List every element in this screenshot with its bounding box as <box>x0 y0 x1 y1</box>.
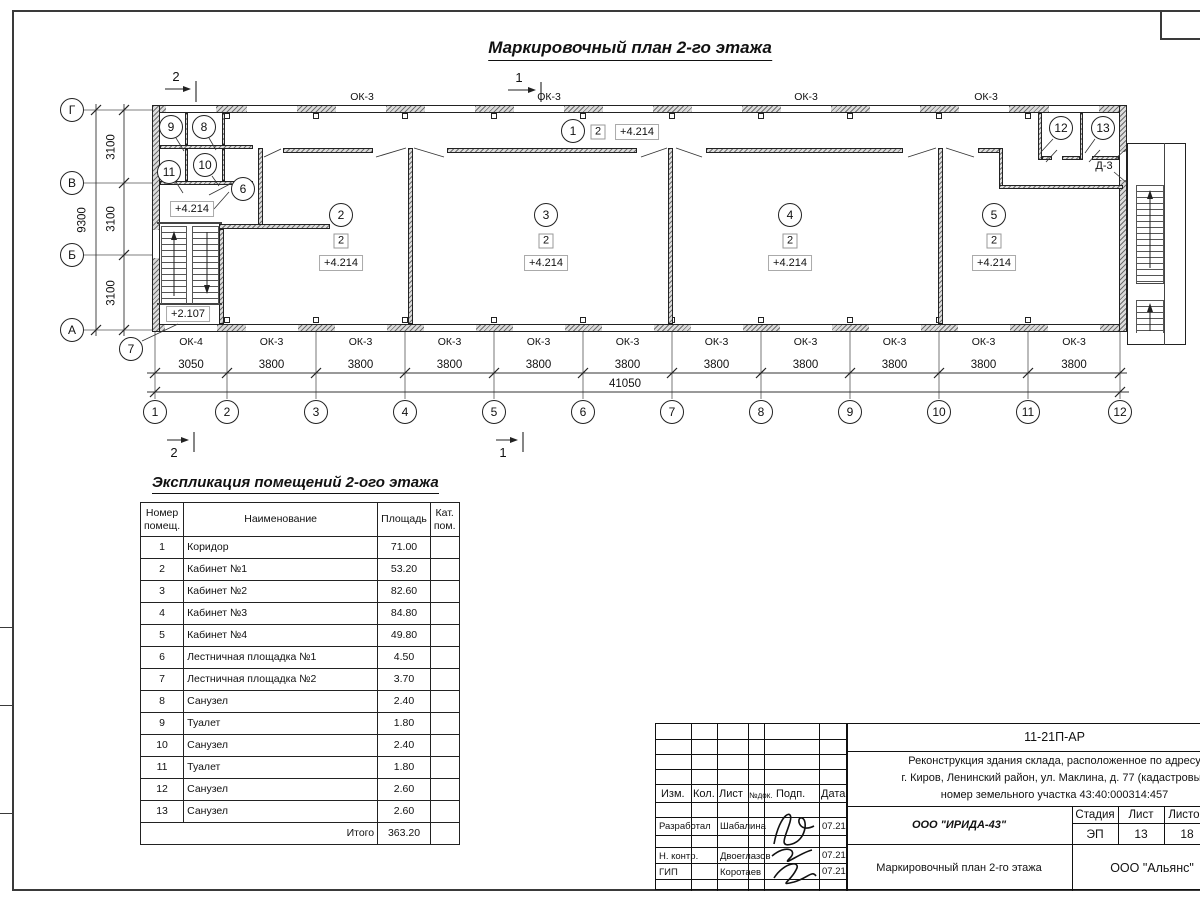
table-row: 7Лестничная площадка №23.70 <box>141 669 460 691</box>
pier-bottom <box>580 317 586 323</box>
dim-label: 3100 <box>106 134 118 160</box>
room-circle: 9 <box>159 115 183 139</box>
pier-bottom <box>224 317 230 323</box>
window-bottom <box>602 324 654 332</box>
axis-circle: 4 <box>393 400 417 424</box>
window-bottom <box>513 324 565 332</box>
dim-label: 3100 <box>106 206 118 232</box>
table-cell <box>430 669 459 691</box>
table-cell: 53.20 <box>378 559 431 581</box>
table-cell: Санузел <box>184 691 378 713</box>
pier-top <box>580 113 586 119</box>
table-cell: Туалет <box>184 713 378 735</box>
outer-wall-right <box>1119 105 1127 332</box>
room-circle: 5 <box>982 203 1006 227</box>
axis-circle: 11 <box>1016 400 1040 424</box>
elevation-mark: +4.214 <box>319 255 363 271</box>
window-label: ОК-3 <box>794 92 818 103</box>
wc-partition <box>1038 113 1042 160</box>
table-row: 12Санузел2.60 <box>141 779 460 801</box>
titleblock: Изм. Кол. Лист №док. Подп. Дата Разработ… <box>655 723 1200 890</box>
table-cell: Кабинет №2 <box>184 581 378 603</box>
partition-wall <box>668 148 673 324</box>
category-box: 2 <box>987 234 1002 249</box>
table-cell: 2.60 <box>378 779 431 801</box>
table-cell: 13 <box>141 801 184 823</box>
table-cell <box>430 647 459 669</box>
table-cell <box>430 823 459 845</box>
table-cell: Кабинет №1 <box>184 559 378 581</box>
dim-label: 3800 <box>348 360 374 372</box>
table-cell: 71.00 <box>378 537 431 559</box>
table-row: 2Кабинет №153.20 <box>141 559 460 581</box>
table-cell <box>430 559 459 581</box>
window-label: ОК-4 <box>179 337 203 348</box>
corridor-wall <box>706 148 903 153</box>
window-label: ОК-3 <box>883 337 907 348</box>
window-left <box>152 230 160 258</box>
window-bottom <box>869 324 921 332</box>
tb-role-developer: Разработал <box>659 821 711 832</box>
axis-circle: 5 <box>482 400 506 424</box>
table-row: 4Кабинет №384.80 <box>141 603 460 625</box>
elevation-mark: +4.214 <box>615 124 659 140</box>
tb-sheet-title: Маркировочный план 2-го этажа <box>846 862 1072 875</box>
room-circle: 13 <box>1091 116 1115 140</box>
table-row: 8Санузел2.40 <box>141 691 460 713</box>
window-bottom <box>246 324 298 332</box>
axis-circle: 9 <box>838 400 862 424</box>
wc-partition <box>222 149 225 181</box>
dim-label: 3800 <box>526 360 552 372</box>
table-cell: 10 <box>141 735 184 757</box>
window-bottom <box>165 324 217 332</box>
table-cell: Коридор <box>184 537 378 559</box>
axis-circle: Г <box>60 98 84 122</box>
dim-label: 3800 <box>615 360 641 372</box>
pier-bottom <box>1025 317 1031 323</box>
category-box: 2 <box>591 125 606 140</box>
tb-listov-value: 18 <box>1164 827 1200 841</box>
window-top <box>692 105 742 113</box>
tb-date-ncontr: 07.21 <box>822 850 846 861</box>
pier-top <box>936 113 942 119</box>
corridor-wall <box>447 148 637 153</box>
table-cell: 82.60 <box>378 581 431 603</box>
schedule-header: Площадь <box>378 503 431 537</box>
tb-col-izm: Изм. <box>661 788 685 801</box>
table-cell <box>430 801 459 823</box>
tb-name-ncontr: Двоеглазов <box>720 851 771 862</box>
window-bottom <box>1048 324 1100 332</box>
table-cell: 1.80 <box>378 713 431 735</box>
dim-label: 3800 <box>704 360 730 372</box>
table-cell: Санузел <box>184 779 378 801</box>
window-bottom <box>424 324 476 332</box>
stair-flight <box>192 226 219 304</box>
axis-circle: В <box>60 171 84 195</box>
pier-bottom <box>313 317 319 323</box>
table-row: 13Санузел2.60 <box>141 801 460 823</box>
category-box: 2 <box>783 234 798 249</box>
table-cell: 9 <box>141 713 184 735</box>
window-bottom <box>780 324 832 332</box>
window-label: ОК-3 <box>350 92 374 103</box>
tb-doc-code: 11-21П-АР <box>846 730 1200 745</box>
axis-circle: 8 <box>749 400 773 424</box>
table-cell: 84.80 <box>378 603 431 625</box>
tb-role-ncontr: Н. контр. <box>659 851 698 862</box>
axis-circle: 7 <box>660 400 684 424</box>
table-cell: 1.80 <box>378 757 431 779</box>
table-cell: 3 <box>141 581 184 603</box>
window-bottom <box>691 324 743 332</box>
category-box: 2 <box>539 234 554 249</box>
tb-company: ООО "Альянс" <box>1072 861 1200 876</box>
room-circle: 11 <box>157 160 181 184</box>
wc-partition <box>1080 113 1083 160</box>
table-cell <box>430 735 459 757</box>
tb-col-list: Лист <box>719 788 743 801</box>
tb-stage-value: ЭП <box>1072 827 1118 841</box>
table-row: 11Туалет1.80 <box>141 757 460 779</box>
table-cell: Лестничная площадка №2 <box>184 669 378 691</box>
pier-top <box>402 113 408 119</box>
table-cell: 6 <box>141 647 184 669</box>
window-label: ОК-3 <box>537 92 561 103</box>
tb-org: ООО "ИРИДА-43" <box>846 819 1072 832</box>
pier-top <box>758 113 764 119</box>
total-label: Итого <box>141 823 378 845</box>
table-cell: Санузел <box>184 801 378 823</box>
room-circle: 12 <box>1049 116 1073 140</box>
window-label: ОК-3 <box>527 337 551 348</box>
tb-name-gip: Коротаев <box>720 867 761 878</box>
table-cell: 2 <box>141 559 184 581</box>
room-circle: 7 <box>119 337 143 361</box>
axis-circle: 3 <box>304 400 328 424</box>
table-cell: 8 <box>141 691 184 713</box>
window-label: ОК-3 <box>1062 337 1086 348</box>
table-cell: 5 <box>141 625 184 647</box>
pier-top <box>1025 113 1031 119</box>
window-label: ОК-3 <box>260 337 284 348</box>
tb-listov-header: Листов <box>1164 809 1200 823</box>
table-cell: 7 <box>141 669 184 691</box>
table-cell: 3.70 <box>378 669 431 691</box>
window-label: ОК-3 <box>794 337 818 348</box>
dim-label: 3800 <box>259 360 285 372</box>
elevation-mark: +4.214 <box>170 201 214 217</box>
tb-list-header: Лист <box>1118 809 1164 823</box>
total-value: 363.20 <box>378 823 431 845</box>
table-cell: 2.40 <box>378 735 431 757</box>
wc-partition <box>222 113 225 145</box>
window-top <box>1049 105 1099 113</box>
table-cell: 2.60 <box>378 801 431 823</box>
room-circle: 3 <box>534 203 558 227</box>
wc-wall <box>160 145 253 149</box>
dim-label: 3800 <box>882 360 908 372</box>
window-label: ОК-3 <box>438 337 462 348</box>
dim-label: 3050 <box>178 360 204 372</box>
axis-circle: А <box>60 318 84 342</box>
elevation-mark: +4.214 <box>524 255 568 271</box>
wc-partition <box>185 149 188 181</box>
axis-circle: 10 <box>927 400 951 424</box>
category-box: 2 <box>334 234 349 249</box>
schedule-header: Кат. пом. <box>430 503 459 537</box>
tb-list-value: 13 <box>1118 827 1164 841</box>
tb-stage-header: Стадия <box>1072 809 1118 823</box>
table-cell: 2.40 <box>378 691 431 713</box>
table-cell: 1 <box>141 537 184 559</box>
pier-bottom <box>758 317 764 323</box>
tb-project-line3: номер земельного участка 43:40:000314:45… <box>846 789 1200 802</box>
window-top <box>514 105 564 113</box>
table-cell: Кабинет №3 <box>184 603 378 625</box>
stair-block-wall <box>219 224 330 229</box>
table-row: 10Санузел2.40 <box>141 735 460 757</box>
section-mark-label: 2 <box>170 446 177 459</box>
pier-top <box>847 113 853 119</box>
schedule-header: Номер помещ. <box>141 503 184 537</box>
pier-top <box>313 113 319 119</box>
dim-label: 3800 <box>437 360 463 372</box>
table-cell: 4.50 <box>378 647 431 669</box>
window-label: ОК-3 <box>349 337 373 348</box>
table-row: 9Туалет1.80 <box>141 713 460 735</box>
axis-circle: 6 <box>571 400 595 424</box>
window-top <box>425 105 475 113</box>
schedule-table: Номер помещ.НаименованиеПлощадьКат. пом.… <box>140 502 460 845</box>
table-cell: 49.80 <box>378 625 431 647</box>
axis-circle: 1 <box>143 400 167 424</box>
dim-label: 3800 <box>1061 360 1087 372</box>
window-label: ОК-3 <box>705 337 729 348</box>
dim-total-label: 9300 <box>77 207 89 233</box>
schedule-header: Наименование <box>184 503 378 537</box>
schedule-title: Экспликация помещений 2-ого этажа <box>152 474 439 494</box>
table-row: 1Коридор71.00 <box>141 537 460 559</box>
elevation-mark: +4.214 <box>768 255 812 271</box>
window-label: ОК-3 <box>616 337 640 348</box>
pier-bottom <box>491 317 497 323</box>
table-cell <box>430 537 459 559</box>
stair-wall <box>219 229 224 324</box>
table-row: 3Кабинет №282.60 <box>141 581 460 603</box>
table-cell: Туалет <box>184 757 378 779</box>
section-mark-label: 1 <box>499 446 506 459</box>
axis-circle: Б <box>60 243 84 267</box>
wc-wall <box>1062 156 1080 160</box>
corridor-wall <box>283 148 373 153</box>
tb-col-ndok: №док. <box>749 791 772 801</box>
window-label: ОК-3 <box>972 337 996 348</box>
window-top <box>870 105 920 113</box>
tb-project-line1: Реконструкция здания склада, расположенн… <box>846 755 1200 768</box>
window-top <box>781 105 831 113</box>
table-cell <box>430 713 459 735</box>
external-stair-flight <box>1136 300 1164 333</box>
room-circle: 2 <box>329 203 353 227</box>
table-cell <box>430 691 459 713</box>
tb-date-gip: 07.21 <box>822 866 846 877</box>
room-circle: 1 <box>561 119 585 143</box>
partition-wall <box>938 148 943 324</box>
table-row: 5Кабинет №449.80 <box>141 625 460 647</box>
tb-role-gip: ГИП <box>659 867 678 878</box>
tb-date-developer: 07.21 <box>822 821 846 832</box>
wc-wall <box>1042 156 1052 160</box>
door-mark-label: Д-3 <box>1095 161 1112 172</box>
stair-block-wall <box>258 148 263 229</box>
partition-wall <box>408 148 413 324</box>
table-cell <box>430 625 459 647</box>
section-mark-label: 1 <box>515 71 522 84</box>
table-cell: Кабинет №4 <box>184 625 378 647</box>
pier-bottom <box>847 317 853 323</box>
room-circle: 8 <box>192 115 216 139</box>
tb-name-developer: Шабалина <box>720 821 766 832</box>
step-wall <box>999 148 1003 189</box>
external-stair-flight <box>1136 185 1164 283</box>
dim-label: 3800 <box>793 360 819 372</box>
dim-label: 3800 <box>971 360 997 372</box>
table-cell <box>430 603 459 625</box>
signature <box>768 842 820 888</box>
window-top <box>166 105 216 113</box>
outer-wall-left <box>152 105 160 332</box>
stair-flight <box>161 226 187 304</box>
tb-col-podp: Подп. <box>776 788 805 801</box>
room-circle: 6 <box>231 177 255 201</box>
section-mark-label: 2 <box>172 70 179 83</box>
dim-total-label: 41050 <box>609 379 641 391</box>
table-cell: Лестничная площадка №1 <box>184 647 378 669</box>
table-cell <box>430 757 459 779</box>
table-cell: 12 <box>141 779 184 801</box>
window-top <box>336 105 386 113</box>
external-stair-line <box>1164 143 1165 345</box>
elevation-mark: +4.214 <box>972 255 1016 271</box>
window-top <box>247 105 297 113</box>
table-cell <box>430 581 459 603</box>
table-cell: Санузел <box>184 735 378 757</box>
pier-top <box>491 113 497 119</box>
external-stair-landing <box>1136 283 1164 284</box>
table-cell: 11 <box>141 757 184 779</box>
wc-partition <box>185 113 188 145</box>
step-wall <box>999 185 1123 189</box>
window-top <box>603 105 653 113</box>
pier-top <box>669 113 675 119</box>
room-circle: 10 <box>193 153 217 177</box>
dim-label: 3100 <box>106 280 118 306</box>
tb-col-kol: Кол. <box>693 788 715 801</box>
tb-project-line2: г. Киров, Ленинский район, ул. Маклина, … <box>846 772 1200 785</box>
stair-edge <box>157 222 222 224</box>
table-row: 6Лестничная площадка №14.50 <box>141 647 460 669</box>
door-opening-d3 <box>1120 152 1126 180</box>
window-label: ОК-3 <box>974 92 998 103</box>
axis-circle: 12 <box>1108 400 1132 424</box>
table-cell <box>430 779 459 801</box>
table-cell: 4 <box>141 603 184 625</box>
window-bottom <box>335 324 387 332</box>
table-total-row: Итого363.20 <box>141 823 460 845</box>
window-top <box>959 105 1009 113</box>
tb-col-data: Дата <box>821 788 845 801</box>
elevation-mark: +2.107 <box>166 306 210 322</box>
axis-circle: 2 <box>215 400 239 424</box>
window-bottom <box>958 324 1010 332</box>
room-circle: 4 <box>778 203 802 227</box>
